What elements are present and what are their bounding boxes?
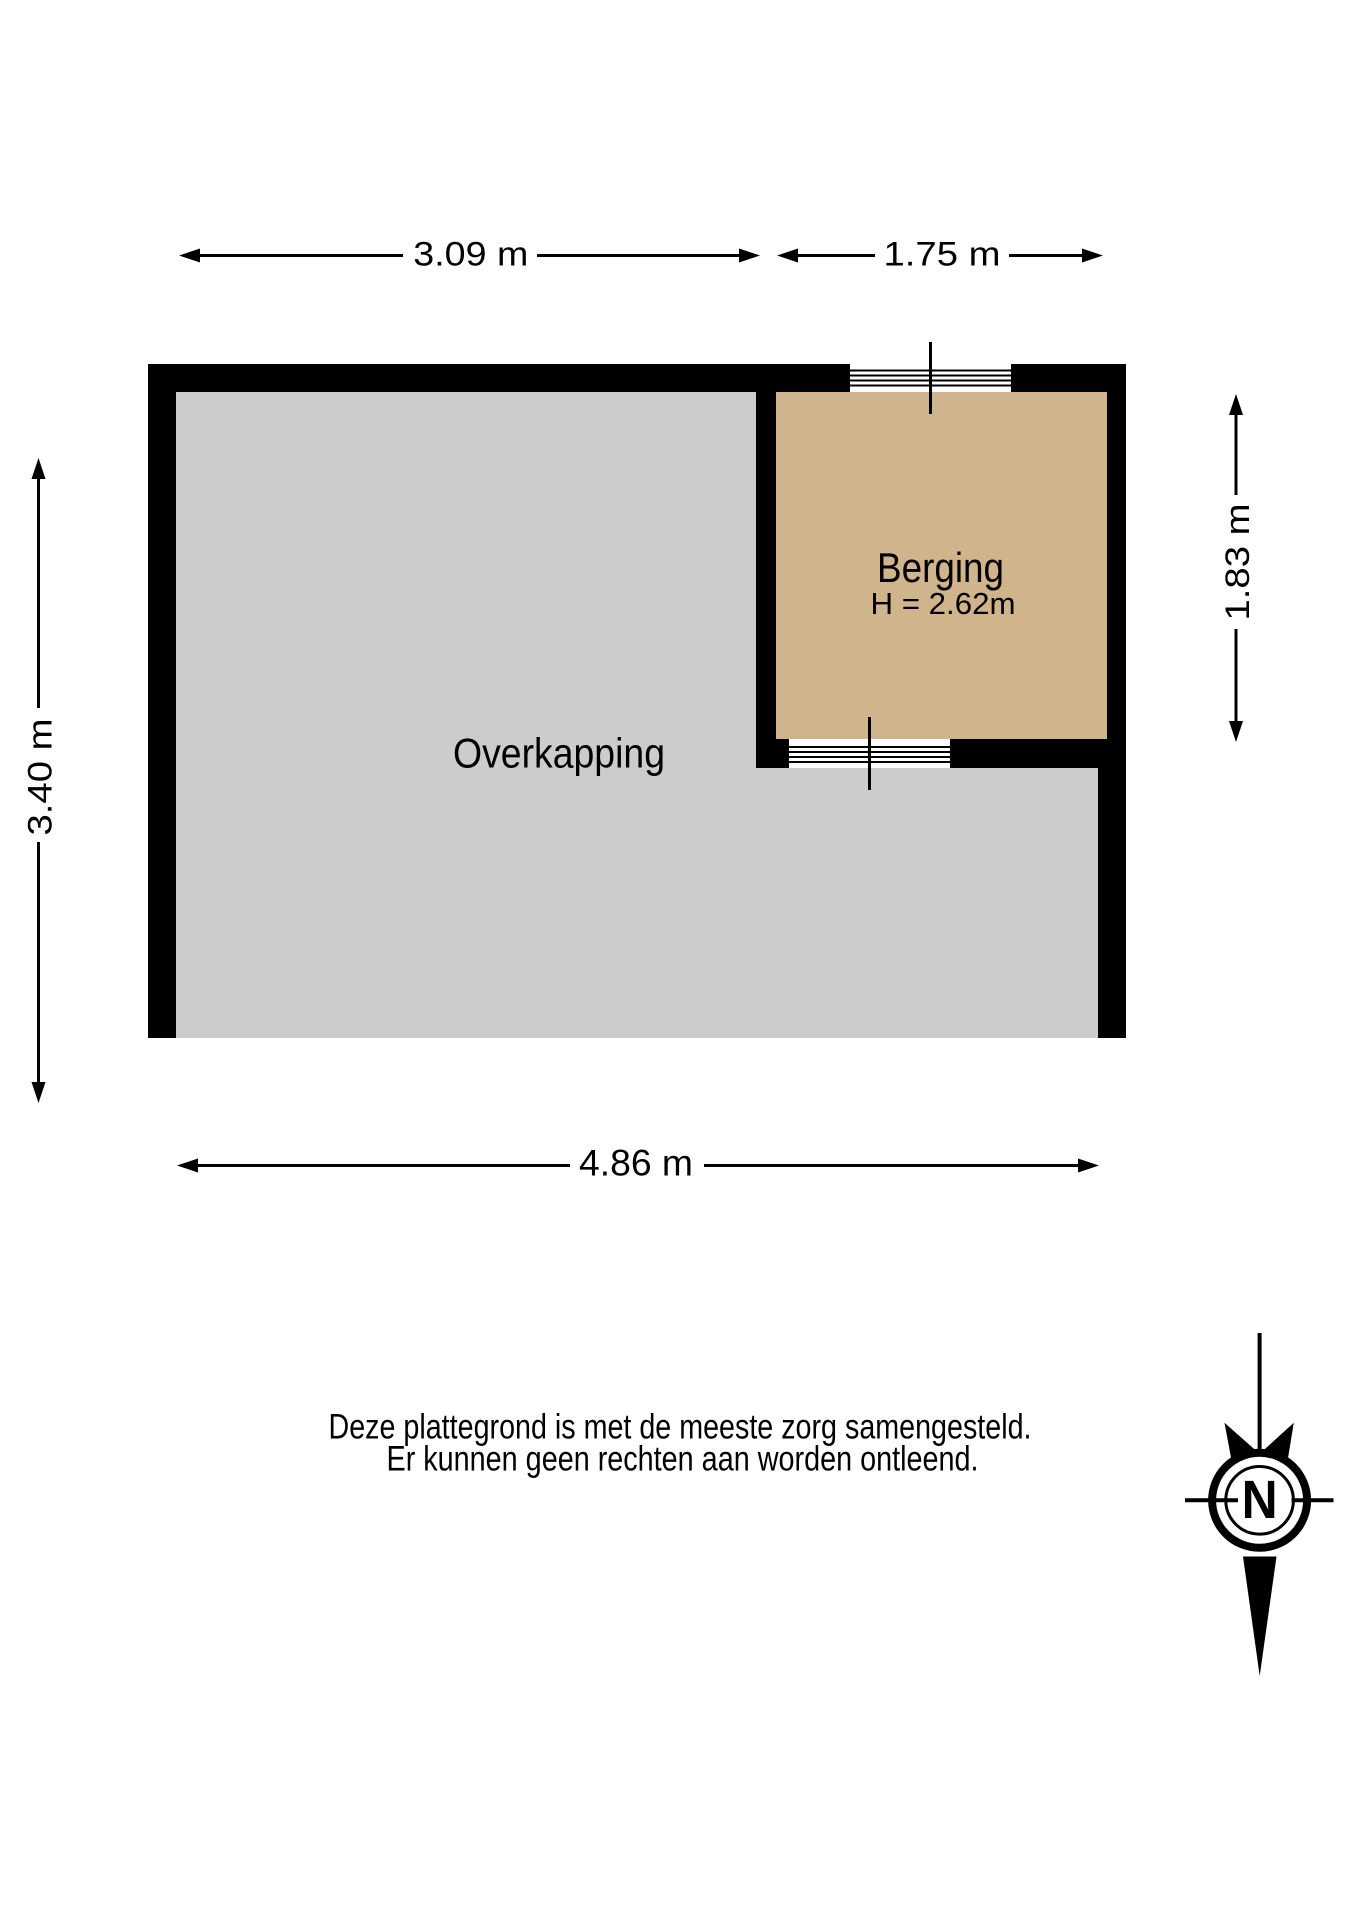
svg-text:1.83 m: 1.83 m (1219, 504, 1257, 621)
svg-text:H = 2.62m: H = 2.62m (871, 587, 1016, 621)
svg-text:1.75 m: 1.75 m (884, 236, 1001, 274)
svg-text:N: N (1242, 1471, 1278, 1530)
svg-text:Berging: Berging (877, 544, 1004, 591)
svg-text:Er kunnen geen rechten aan wor: Er kunnen geen rechten aan worden ontlee… (387, 1439, 979, 1478)
svg-text:4.86 m: 4.86 m (579, 1143, 693, 1184)
svg-text:3.40 m: 3.40 m (22, 719, 60, 836)
svg-text:Overkapping: Overkapping (453, 730, 665, 777)
svg-text:3.09 m: 3.09 m (413, 236, 528, 274)
